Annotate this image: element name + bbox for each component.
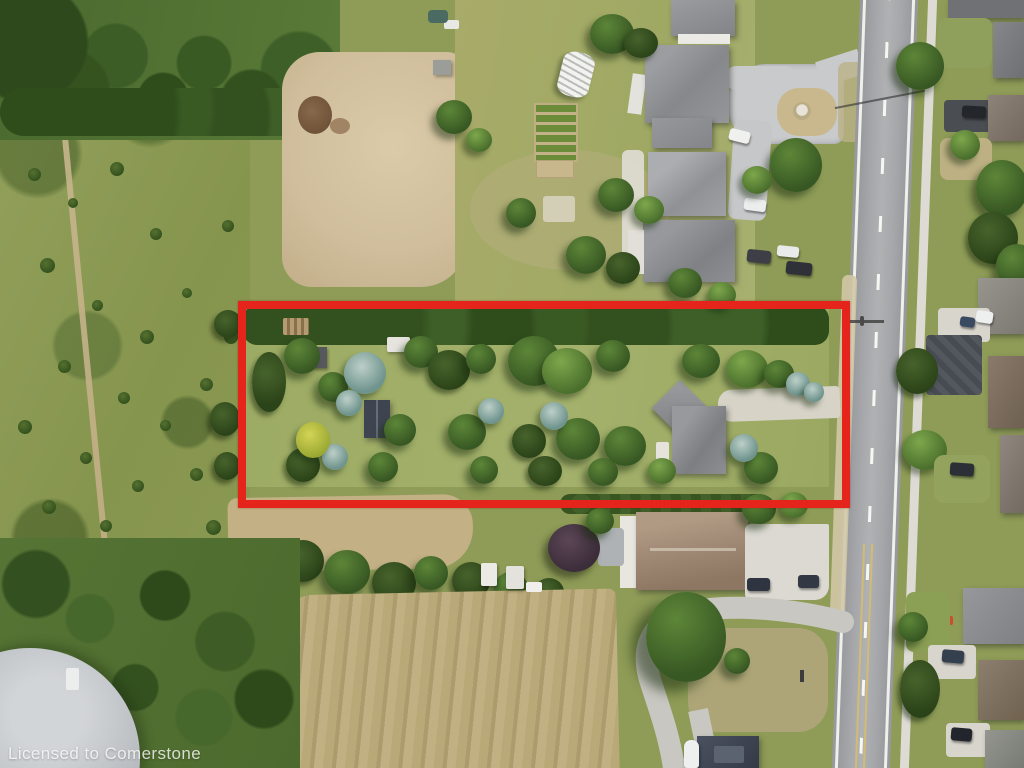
property-outline [238, 301, 850, 508]
shrub [206, 520, 221, 535]
lawn [938, 18, 992, 68]
tree [668, 268, 702, 298]
large-tree [646, 592, 726, 682]
tree [624, 28, 658, 58]
tree [976, 160, 1024, 216]
tree [742, 166, 772, 194]
trailer [526, 582, 542, 592]
shrub [100, 520, 112, 532]
tree [634, 196, 664, 224]
shrub [160, 420, 171, 431]
shrub [42, 500, 56, 514]
car [941, 649, 964, 664]
tree [210, 402, 240, 436]
house-roof [988, 95, 1024, 141]
utility-pole [860, 316, 864, 326]
shrub [18, 420, 32, 434]
tree [506, 198, 536, 228]
car [746, 249, 771, 264]
house-roof [948, 0, 1024, 18]
sand-play-area [543, 196, 575, 222]
tree [436, 100, 472, 134]
house-roof [963, 588, 1024, 644]
shrub [132, 480, 144, 492]
shrub [150, 228, 162, 240]
shrub [182, 288, 192, 298]
shrub [80, 452, 92, 464]
car [975, 310, 994, 324]
watermark: Licensed to Comerstone [8, 744, 201, 764]
tree [586, 508, 614, 534]
debris-pile [298, 96, 332, 134]
house-roof [985, 730, 1024, 768]
white-shed [481, 563, 497, 586]
tree [214, 452, 240, 480]
tree [566, 236, 606, 274]
tree [896, 348, 938, 394]
shrub [222, 220, 234, 232]
house-roof [645, 45, 729, 123]
garage-panel [714, 746, 744, 763]
street-arm [726, 66, 796, 90]
shrub [40, 258, 55, 273]
boat [684, 740, 699, 768]
shrub [200, 378, 213, 391]
aerial-photo: Licensed to Comerstone [0, 0, 1024, 768]
tree [414, 556, 448, 590]
garden-bed [534, 103, 578, 162]
garden-bed [536, 160, 574, 178]
tree [770, 138, 822, 192]
white-shed [506, 566, 524, 589]
shrub [28, 168, 41, 181]
car [962, 105, 987, 118]
tree [598, 178, 634, 212]
shed [433, 60, 451, 75]
dirt-patch [282, 52, 467, 287]
tree [606, 252, 640, 284]
roof-ridge [650, 548, 736, 551]
house-roof [988, 356, 1024, 428]
shrub [140, 330, 154, 344]
house-roof [671, 0, 735, 36]
shrub [68, 198, 78, 208]
car [950, 727, 972, 742]
tree [466, 128, 492, 152]
house-roof [652, 118, 712, 148]
car [776, 245, 799, 258]
shrub [118, 392, 130, 404]
shrub [110, 162, 124, 176]
tree [324, 550, 370, 594]
small-white-shed [66, 668, 79, 690]
tree [896, 42, 944, 90]
shrub [58, 360, 71, 373]
tree [950, 130, 980, 160]
tarp [428, 10, 448, 23]
island-garden [793, 102, 811, 120]
car [950, 462, 975, 477]
house-roof [978, 660, 1024, 720]
house-roof [993, 22, 1024, 78]
house-wall [678, 34, 730, 44]
shrub [92, 300, 103, 311]
car [785, 261, 812, 277]
debris-pile [330, 118, 350, 134]
house-roof [1000, 435, 1024, 513]
shrub [190, 468, 203, 481]
car [959, 316, 975, 328]
